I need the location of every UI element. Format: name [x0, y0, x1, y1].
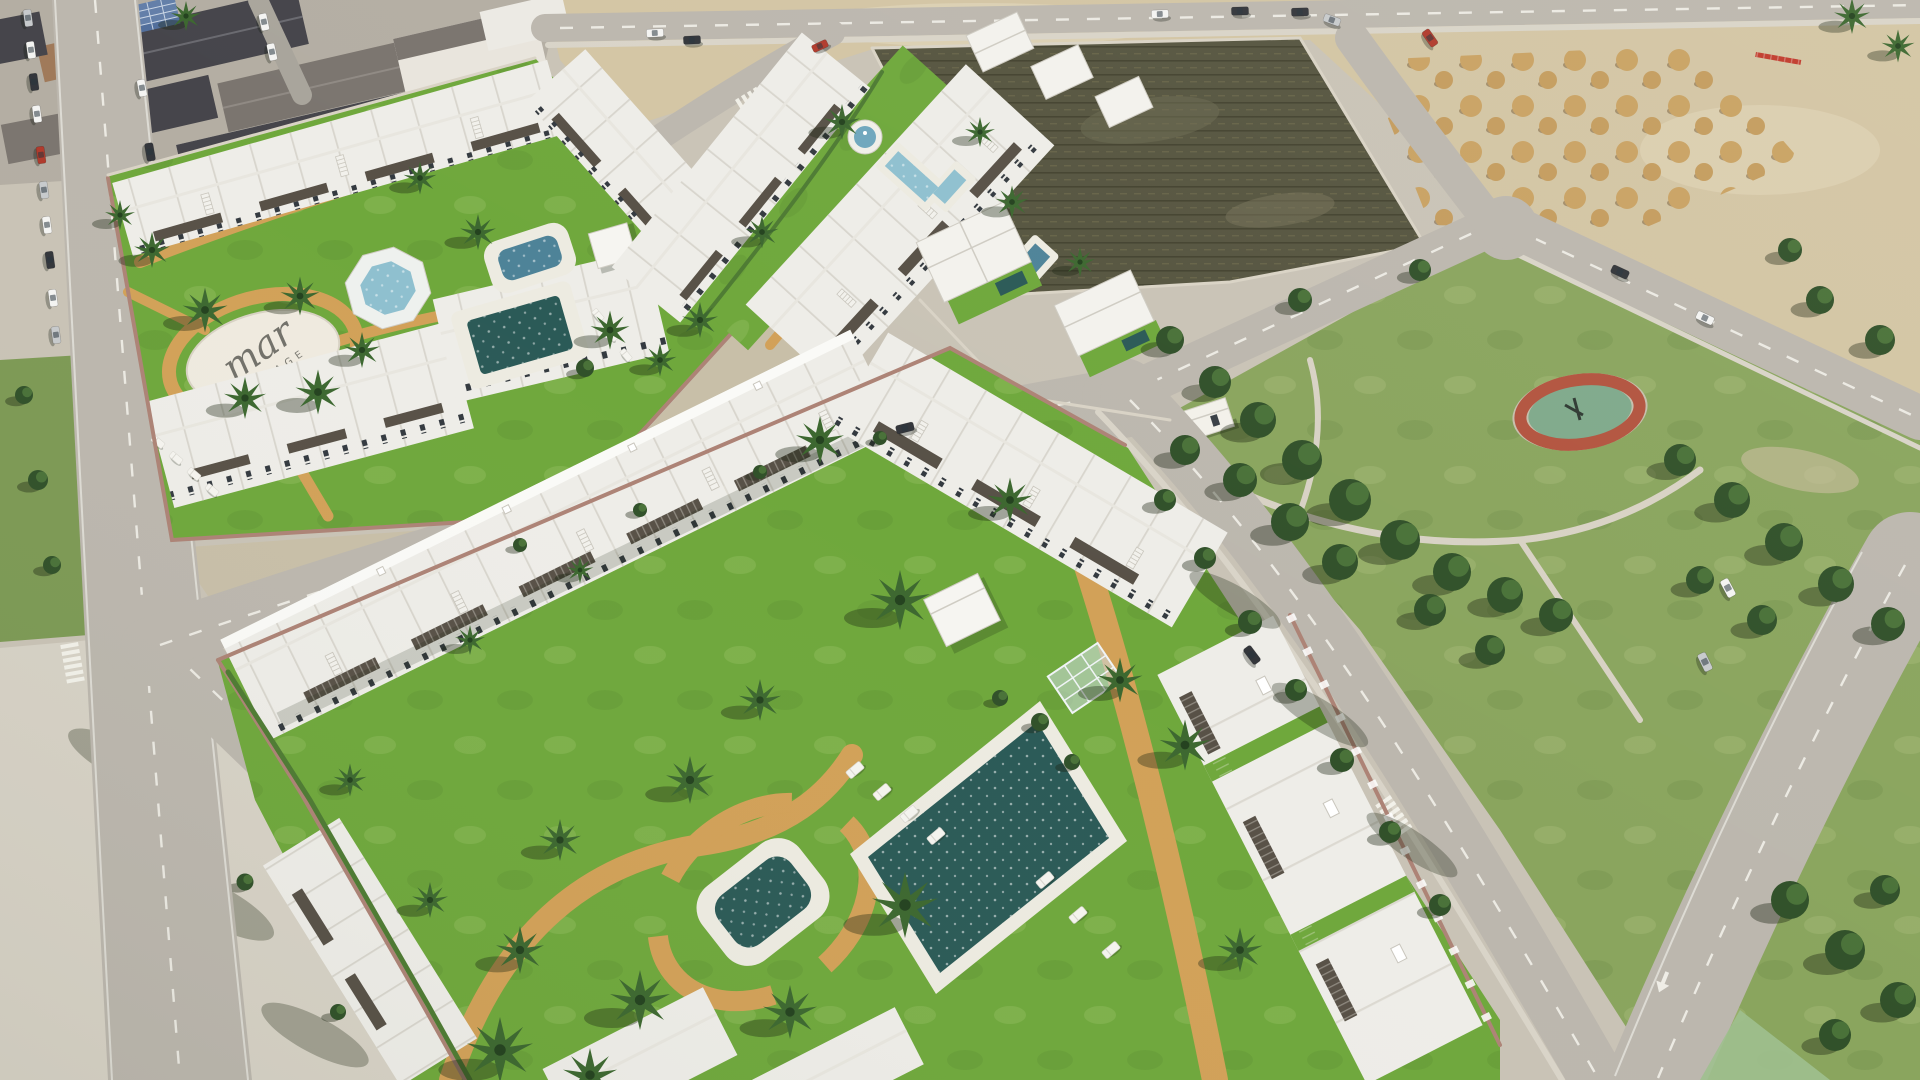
light-grade-overlay [0, 0, 1920, 1080]
aerial-scene: mar VILLAGE [0, 0, 1920, 1080]
aerial-render-photo: mar VILLAGE [0, 0, 1920, 1080]
